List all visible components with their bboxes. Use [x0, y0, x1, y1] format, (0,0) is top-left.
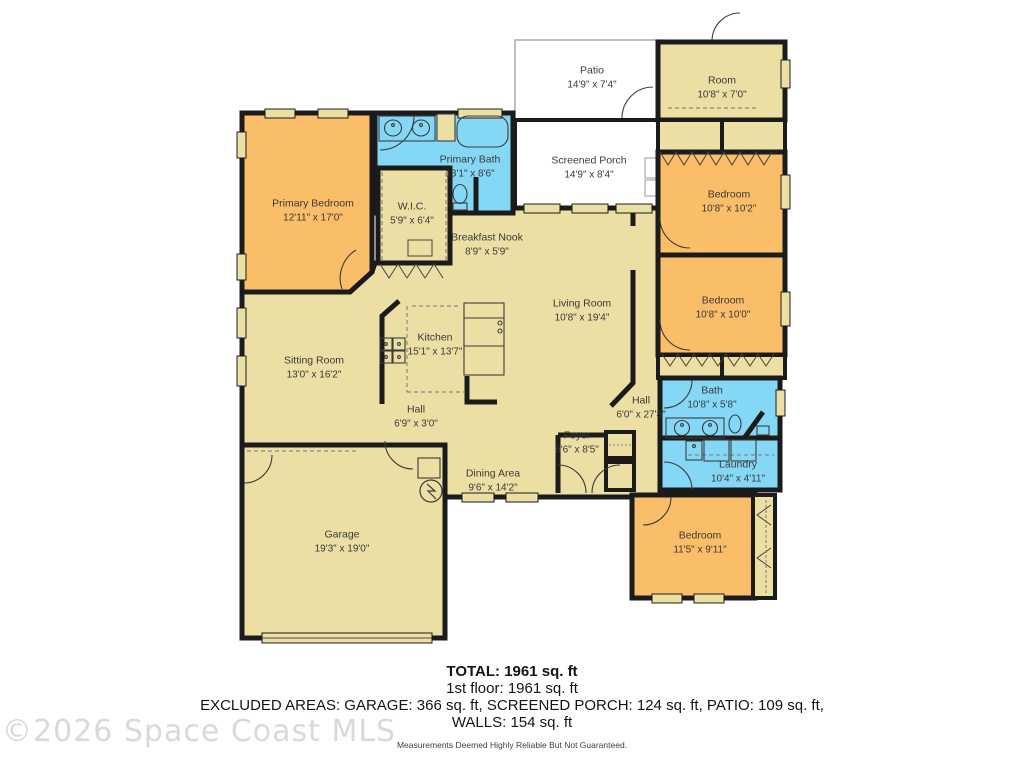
room-label-bedroom-1: Bedroom10'8" x 10'2" — [702, 189, 757, 216]
foyer-closet — [606, 432, 634, 490]
room-label-primary-bedroom: Primary Bedroom12'11" x 17'0" — [272, 198, 354, 225]
room-label-breakfast-nook: Breakfast Nook8'9" x 5'9" — [451, 232, 523, 259]
room-label-patio: Patio14'9" x 7'4" — [567, 65, 616, 92]
area-summary: TOTAL: 1961 sq. ft 1st floor: 1961 sq. f… — [0, 663, 1024, 754]
floor-plan-page: Patio14'9" x 7'4" Room10'8" x 7'0" Scree… — [0, 0, 1024, 768]
excluded-areas-text-line2: WALLS: 154 sq. ft — [0, 714, 1024, 731]
disclaimer-text: Measurements Deemed Highly Reliable But … — [0, 737, 1024, 754]
room-label-dining-area: Dining Area9'6" x 14'2" — [466, 468, 520, 495]
room-label-sitting-room: Sitting Room13'0" x 16'2" — [284, 355, 344, 382]
room-label-wic: W.I.C.5'9" x 6'4" — [390, 201, 434, 228]
room-label-hall-kitchen: Hall6'9" x 3'0" — [394, 404, 438, 431]
floor-plan-drawing — [0, 0, 1024, 768]
room-label-foyer: Foyer6'6" x 8'5" — [555, 430, 599, 457]
room-label-living-room: Living Room10'8" x 19'4" — [553, 298, 611, 325]
room-label-kitchen: Kitchen15'1" x 13'7" — [408, 332, 463, 359]
room-label-garage: Garage19'3" x 19'0" — [315, 529, 370, 556]
room-label-bedroom-3: Bedroom11'5" x 9'11" — [673, 530, 726, 557]
closet-strip-mid — [658, 354, 785, 378]
excluded-areas-text-line1: EXCLUDED AREAS: GARAGE: 366 sq. ft, SCRE… — [0, 697, 1024, 714]
room-label-room: Room10'8" x 7'0" — [697, 75, 746, 102]
room-label-laundry: Laundry10'4" x 4'11" — [711, 459, 765, 486]
first-floor-area-text: 1st floor: 1961 sq. ft — [0, 680, 1024, 697]
closet-strip-top — [658, 120, 785, 152]
room-label-bath: Bath10'8" x 5'8" — [687, 385, 736, 412]
room-label-bedroom-2: Bedroom10'8" x 10'0" — [696, 295, 751, 322]
room-label-screened-porch: Screened Porch14'9" x 8'4" — [551, 155, 626, 182]
room-label-hall-right: Hall6'0" x 27'8" — [616, 395, 665, 422]
total-area-text: TOTAL: 1961 sq. ft — [0, 663, 1024, 680]
closet-strip-bedroom3 — [753, 495, 775, 598]
room-label-primary-bath: Primary Bath13'1" x 8'6" — [440, 154, 501, 181]
